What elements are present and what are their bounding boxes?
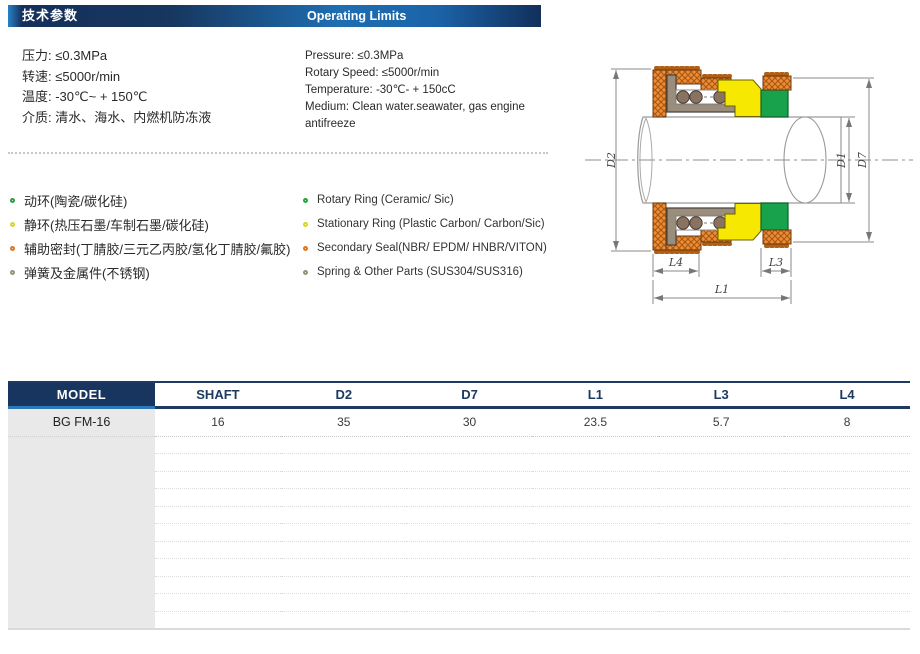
section-title-en: Operating Limits xyxy=(307,5,406,27)
empty-cell xyxy=(658,524,784,542)
empty-cell xyxy=(407,594,533,612)
material-label: Spring & Other Parts (SUS304/SUS316) xyxy=(317,266,523,278)
empty-cell xyxy=(407,471,533,489)
empty-cell xyxy=(407,489,533,507)
arrowhead xyxy=(866,79,872,88)
rotary-ring xyxy=(761,90,788,117)
dim-label-L3: L3 xyxy=(768,256,783,269)
table-empty-rows xyxy=(8,436,910,629)
empty-cell xyxy=(784,559,910,577)
empty-cell xyxy=(784,524,910,542)
empty-cell xyxy=(8,471,155,489)
material-label: 弹簧及金属件(不锈钢) xyxy=(24,263,150,282)
seal-assembly-mirror xyxy=(653,203,791,252)
spring-coil xyxy=(714,91,726,103)
empty-cell xyxy=(155,611,281,629)
table-row: BG FM-16 16 35 30 23.5 5.7 8 xyxy=(8,407,910,436)
empty-cell xyxy=(407,576,533,594)
empty-cell xyxy=(8,524,155,542)
col-header-l1: L1 xyxy=(532,382,658,407)
spring-coil xyxy=(690,91,702,103)
empty-cell xyxy=(8,436,155,454)
list-item: 静环(热压石墨/车制石墨/碳化硅) xyxy=(10,212,291,236)
empty-cell xyxy=(784,454,910,472)
empty-cell xyxy=(155,559,281,577)
empty-cell xyxy=(532,611,658,629)
table-row-empty xyxy=(8,506,910,524)
spec-line-zh: 压力: ≤0.3MPa xyxy=(22,46,211,67)
empty-cell xyxy=(532,594,658,612)
empty-cell xyxy=(155,524,281,542)
empty-cell xyxy=(407,611,533,629)
arrowhead xyxy=(613,241,619,250)
empty-cell xyxy=(532,436,658,454)
material-label: 动环(陶瓷/碳化硅) xyxy=(24,191,127,210)
empty-cell xyxy=(155,594,281,612)
empty-cell xyxy=(658,471,784,489)
empty-cell xyxy=(281,524,407,542)
ring-bullet-icon xyxy=(10,270,15,275)
materials-list-en: Rotary Ring (Ceramic/ Sic) Stationary Ri… xyxy=(303,188,547,284)
arrowhead xyxy=(846,118,852,127)
empty-cell xyxy=(532,489,658,507)
section-header-bar: 技术参数 Operating Limits xyxy=(8,5,541,27)
empty-cell xyxy=(407,541,533,559)
spec-line-zh: 转速: ≤5000r/min xyxy=(22,67,211,88)
dotted-separator xyxy=(8,152,548,154)
empty-cell xyxy=(281,436,407,454)
empty-cell xyxy=(658,576,784,594)
material-label: 辅助密封(丁腈胶/三元乙丙胶/氢化丁腈胶/氟胶) xyxy=(24,239,291,258)
materials-list-zh: 动环(陶瓷/碳化硅) 静环(热压石墨/车制石墨/碳化硅) 辅助密封(丁腈胶/三元… xyxy=(10,188,291,284)
table-row-empty xyxy=(8,541,910,559)
empty-cell xyxy=(658,489,784,507)
spec-line-en: Medium: Clean water.seawater, gas engine… xyxy=(305,99,550,133)
table-row-empty xyxy=(8,454,910,472)
list-item: 弹簧及金属件(不锈钢) xyxy=(10,260,291,284)
dim-label-L4: L4 xyxy=(668,256,683,269)
empty-cell xyxy=(155,471,281,489)
list-item: Secondary Seal(NBR/ EPDM/ HNBR/VITON) xyxy=(303,236,547,260)
ring-bullet-icon xyxy=(10,222,15,227)
spec-line-en: Temperature: -30℃- + 150cC xyxy=(305,82,550,99)
list-item: Stationary Ring (Plastic Carbon/ Carbon/… xyxy=(303,212,547,236)
table-row-empty xyxy=(8,489,910,507)
material-label: Rotary Ring (Ceramic/ Sic) xyxy=(317,194,454,206)
empty-cell xyxy=(407,436,533,454)
empty-cell xyxy=(8,454,155,472)
empty-cell xyxy=(281,559,407,577)
col-header-l4: L4 xyxy=(784,382,910,407)
empty-cell xyxy=(784,541,910,559)
dim-label-L1: L1 xyxy=(714,283,729,296)
cell-shaft: 16 xyxy=(155,407,281,436)
empty-cell xyxy=(532,541,658,559)
arrowhead xyxy=(654,295,663,301)
empty-cell xyxy=(784,594,910,612)
ring-bullet-icon xyxy=(303,198,308,203)
dim-label-D7: D7 xyxy=(856,152,869,169)
table-row-empty xyxy=(8,471,910,489)
arrowhead xyxy=(689,268,698,274)
seal-cross-section-diagram: D2 D1 D7 L4 xyxy=(583,42,918,347)
col-header-d7: D7 xyxy=(407,382,533,407)
empty-cell xyxy=(407,454,533,472)
empty-cell xyxy=(281,489,407,507)
spec-line-en: Rotary Speed: ≤5000r/min xyxy=(305,65,550,82)
cell-d7: 30 xyxy=(407,407,533,436)
dim-label-D1: D1 xyxy=(835,152,848,169)
empty-cell xyxy=(8,594,155,612)
empty-cell xyxy=(532,576,658,594)
material-label: Secondary Seal(NBR/ EPDM/ HNBR/VITON) xyxy=(317,242,547,254)
empty-cell xyxy=(784,436,910,454)
material-label: 静环(热压石墨/车制石墨/碳化硅) xyxy=(24,215,209,234)
empty-cell xyxy=(8,611,155,629)
table-body: BG FM-16 16 35 30 23.5 5.7 8 xyxy=(8,407,910,436)
list-item: Rotary Ring (Ceramic/ Sic) xyxy=(303,188,547,212)
rubber-bellows-leg xyxy=(653,70,666,117)
section-title-zh: 技术参数 xyxy=(22,5,78,27)
empty-cell xyxy=(784,611,910,629)
empty-cell xyxy=(407,559,533,577)
col-header-shaft: SHAFT xyxy=(155,382,281,407)
empty-cell xyxy=(281,576,407,594)
cell-l1: 23.5 xyxy=(532,407,658,436)
empty-cell xyxy=(281,454,407,472)
arrowhead xyxy=(846,193,852,202)
empty-cell xyxy=(155,489,281,507)
empty-cell xyxy=(532,559,658,577)
empty-cell xyxy=(658,436,784,454)
specs-en: Pressure: ≤0.3MPa Rotary Speed: ≤5000r/m… xyxy=(305,48,550,133)
arrowhead xyxy=(654,268,663,274)
ring-bullet-icon xyxy=(303,270,308,275)
empty-cell xyxy=(281,506,407,524)
ring-bullet-icon xyxy=(303,222,308,227)
empty-cell xyxy=(658,541,784,559)
empty-cell xyxy=(155,541,281,559)
list-item: 辅助密封(丁腈胶/三元乙丙胶/氢化丁腈胶/氟胶) xyxy=(10,236,291,260)
empty-cell xyxy=(784,489,910,507)
ring-bullet-icon xyxy=(10,246,15,251)
spec-table: MODEL SHAFT D2 D7 L1 L3 L4 BG FM-16 16 3… xyxy=(8,381,910,630)
empty-cell xyxy=(532,506,658,524)
empty-cell xyxy=(8,489,155,507)
material-label: Stationary Ring (Plastic Carbon/ Carbon/… xyxy=(317,218,545,230)
empty-cell xyxy=(658,611,784,629)
table-row-empty xyxy=(8,611,910,629)
empty-cell xyxy=(281,471,407,489)
empty-cell xyxy=(8,576,155,594)
table-row-empty xyxy=(8,559,910,577)
empty-cell xyxy=(281,541,407,559)
rubber-cup xyxy=(763,76,791,90)
table-row-empty xyxy=(8,576,910,594)
spec-line-zh: 温度: -30℃~ + 150℃ xyxy=(22,87,211,108)
spring-coil xyxy=(677,91,689,103)
table-row-empty xyxy=(8,594,910,612)
col-header-l3: L3 xyxy=(658,382,784,407)
empty-cell xyxy=(784,506,910,524)
col-header-d2: D2 xyxy=(281,382,407,407)
empty-cell xyxy=(8,559,155,577)
empty-cell xyxy=(155,454,281,472)
seal-drawing-svg: D2 D1 D7 L4 xyxy=(583,42,918,347)
arrowhead xyxy=(781,295,790,301)
empty-cell xyxy=(8,541,155,559)
empty-cell xyxy=(532,524,658,542)
cell-d2: 35 xyxy=(281,407,407,436)
empty-cell xyxy=(658,454,784,472)
cell-l3: 5.7 xyxy=(658,407,784,436)
specs-zh: 压力: ≤0.3MPa 转速: ≤5000r/min 温度: -30℃~ + 1… xyxy=(22,46,211,128)
empty-cell xyxy=(658,506,784,524)
empty-cell xyxy=(281,594,407,612)
empty-cell xyxy=(784,576,910,594)
table-row-empty xyxy=(8,524,910,542)
empty-cell xyxy=(281,611,407,629)
cell-model: BG FM-16 xyxy=(8,407,155,436)
ring-bullet-icon xyxy=(10,198,15,203)
spec-line-zh: 介质: 清水、海水、内燃机防冻液 xyxy=(22,108,211,129)
list-item: 动环(陶瓷/碳化硅) xyxy=(10,188,291,212)
col-header-model: MODEL xyxy=(8,382,155,407)
empty-cell xyxy=(658,559,784,577)
empty-cell xyxy=(407,524,533,542)
empty-cell xyxy=(155,576,281,594)
page: 技术参数 Operating Limits 压力: ≤0.3MPa 转速: ≤5… xyxy=(0,0,920,654)
cell-l4: 8 xyxy=(784,407,910,436)
arrowhead xyxy=(613,70,619,79)
empty-cell xyxy=(532,471,658,489)
empty-cell xyxy=(155,506,281,524)
empty-cell xyxy=(658,594,784,612)
ring-bullet-icon xyxy=(303,246,308,251)
table-header-row: MODEL SHAFT D2 D7 L1 L3 L4 xyxy=(8,382,910,407)
seal-assembly xyxy=(653,68,791,117)
spec-line-en: Pressure: ≤0.3MPa xyxy=(305,48,550,65)
empty-cell xyxy=(784,471,910,489)
dim-label-D2: D2 xyxy=(605,152,618,169)
empty-cell xyxy=(155,436,281,454)
arrowhead xyxy=(866,232,872,241)
empty-cell xyxy=(407,506,533,524)
table-row-empty xyxy=(8,436,910,454)
list-item: Spring & Other Parts (SUS304/SUS316) xyxy=(303,260,547,284)
empty-cell xyxy=(532,454,658,472)
empty-cell xyxy=(8,506,155,524)
